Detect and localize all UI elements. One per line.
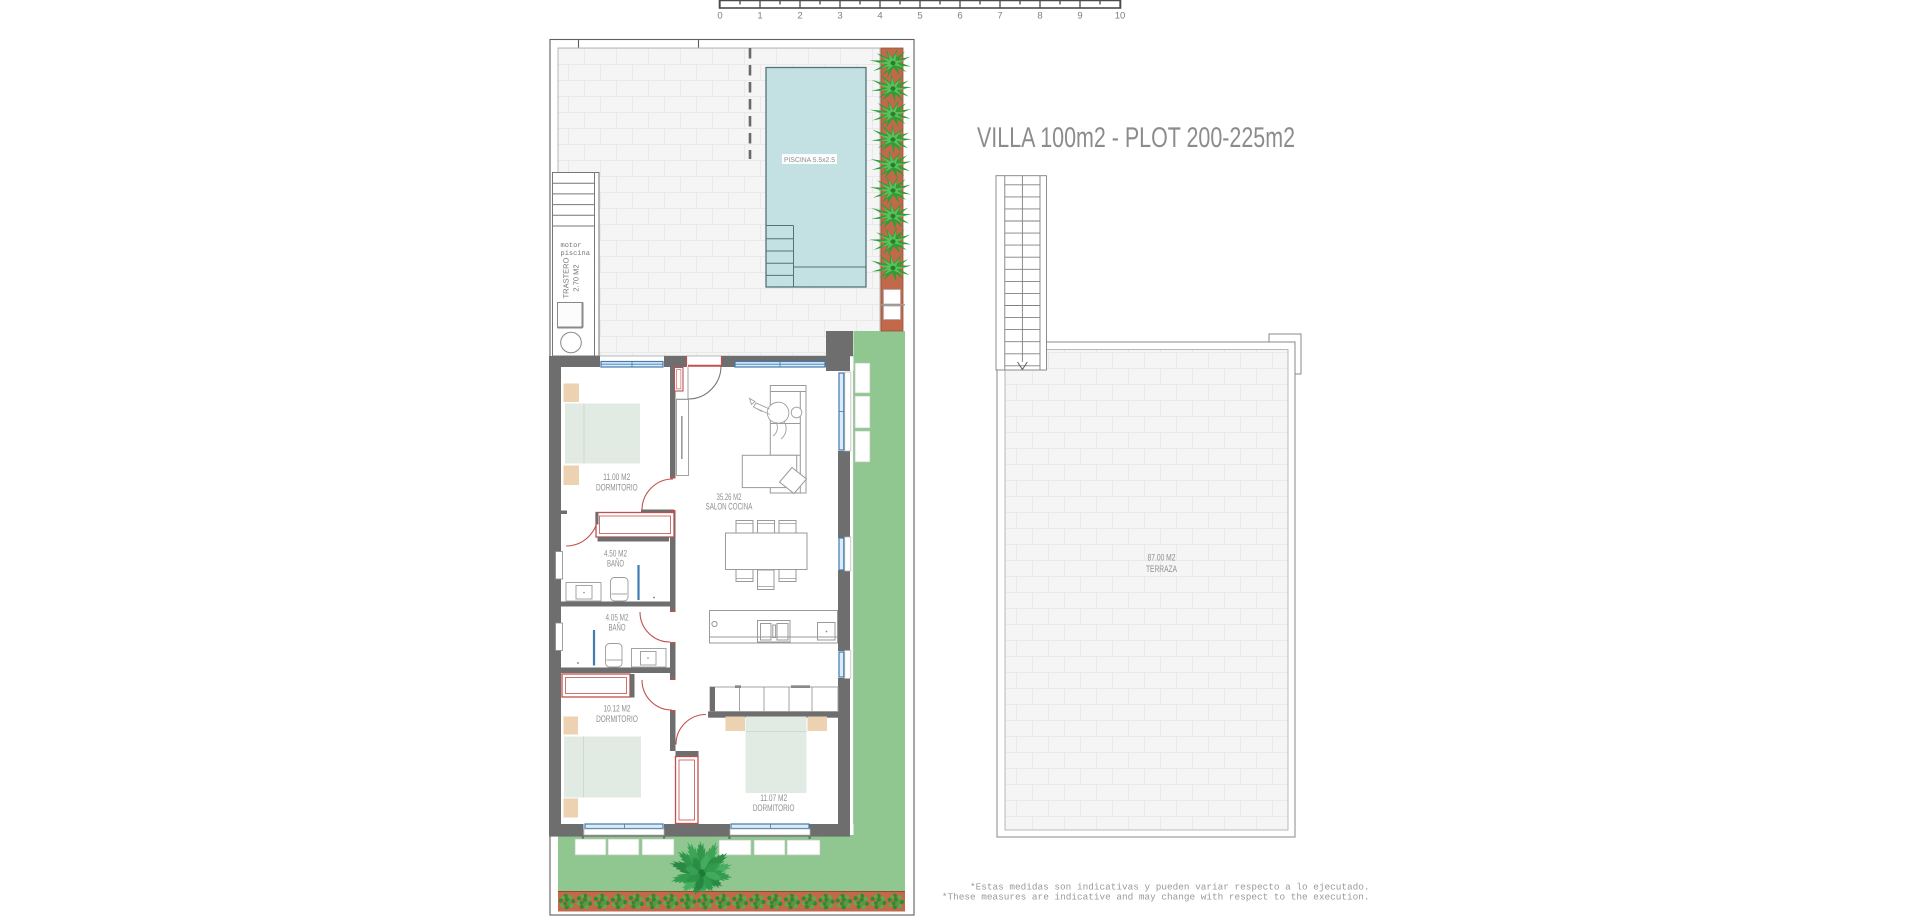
svg-text:87.00 M2: 87.00 M2 (1148, 553, 1176, 564)
svg-text:piscina: piscina (561, 249, 590, 258)
svg-text:BAÑO: BAÑO (607, 558, 624, 570)
svg-text:DORMITORIO: DORMITORIO (596, 714, 638, 725)
svg-text:DORMITORIO: DORMITORIO (596, 482, 638, 493)
svg-text:DORMITORIO: DORMITORIO (753, 803, 795, 814)
svg-text:9: 9 (1077, 11, 1082, 22)
svg-text:motor: motor (561, 242, 582, 250)
svg-text:TERRAZA: TERRAZA (1146, 564, 1177, 575)
svg-text:PISCINA 5.5x2.5: PISCINA 5.5x2.5 (784, 157, 835, 164)
svg-text:6: 6 (957, 11, 962, 22)
svg-text:3: 3 (837, 11, 842, 22)
svg-text:0: 0 (717, 11, 722, 22)
svg-text:10: 10 (1115, 11, 1126, 22)
svg-text:SALON COCINA: SALON COCINA (706, 502, 753, 513)
svg-text:5: 5 (917, 11, 922, 22)
svg-text:8: 8 (1037, 11, 1042, 22)
svg-text:7: 7 (997, 11, 1002, 22)
svg-text:2: 2 (797, 11, 802, 22)
svg-text:VILLA 100m2 - PLOT 200-225m2: VILLA 100m2 - PLOT 200-225m2 (977, 122, 1295, 154)
svg-text:4: 4 (877, 11, 882, 22)
svg-text:BAÑO: BAÑO (609, 622, 626, 634)
svg-text:TRASTERO: TRASTERO (562, 257, 571, 298)
svg-text:2.70 M2: 2.70 M2 (572, 264, 581, 291)
svg-text:1: 1 (757, 11, 762, 22)
svg-text:*These measures are indicative: *These measures are indicative and may c… (942, 892, 1370, 903)
